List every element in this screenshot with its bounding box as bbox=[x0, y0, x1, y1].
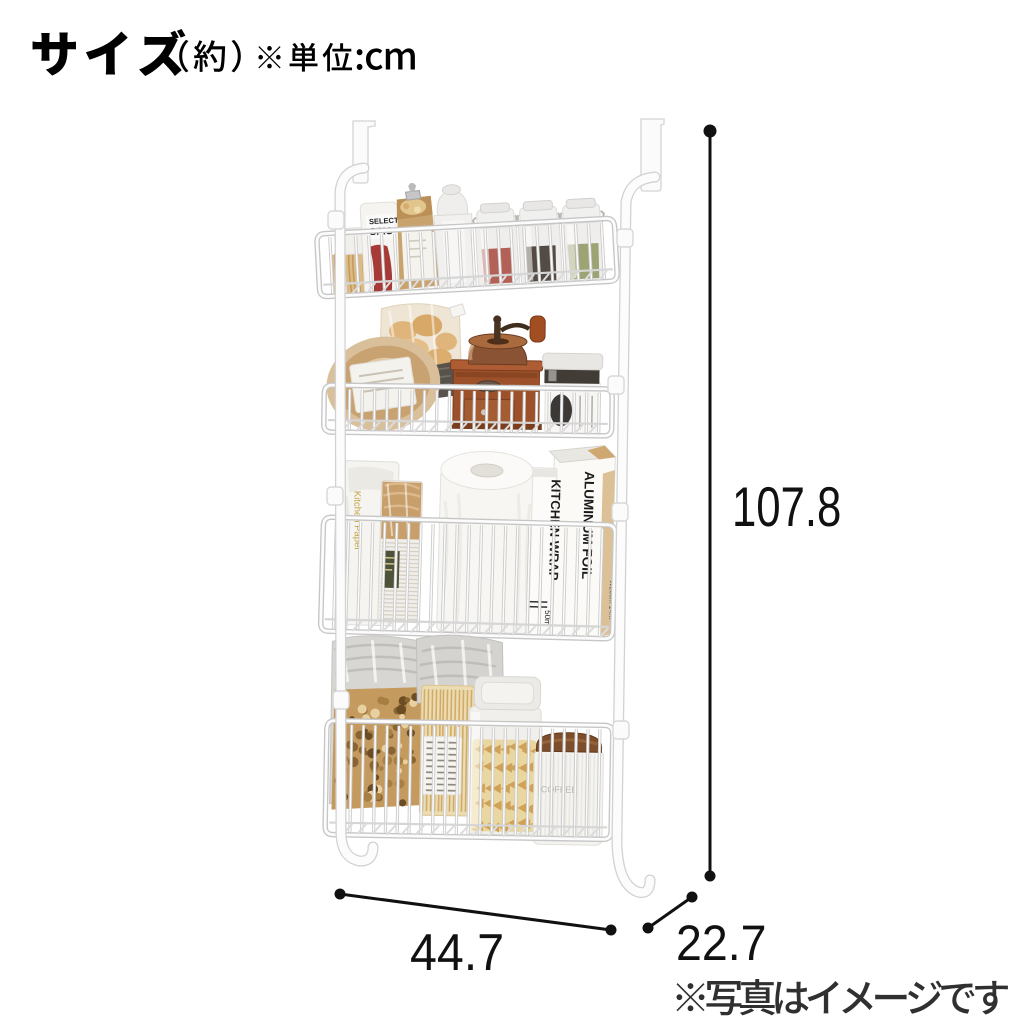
svg-text:SELECT: SELECT bbox=[369, 216, 399, 227]
svg-text:COFFEE: COFFEE bbox=[541, 784, 578, 795]
